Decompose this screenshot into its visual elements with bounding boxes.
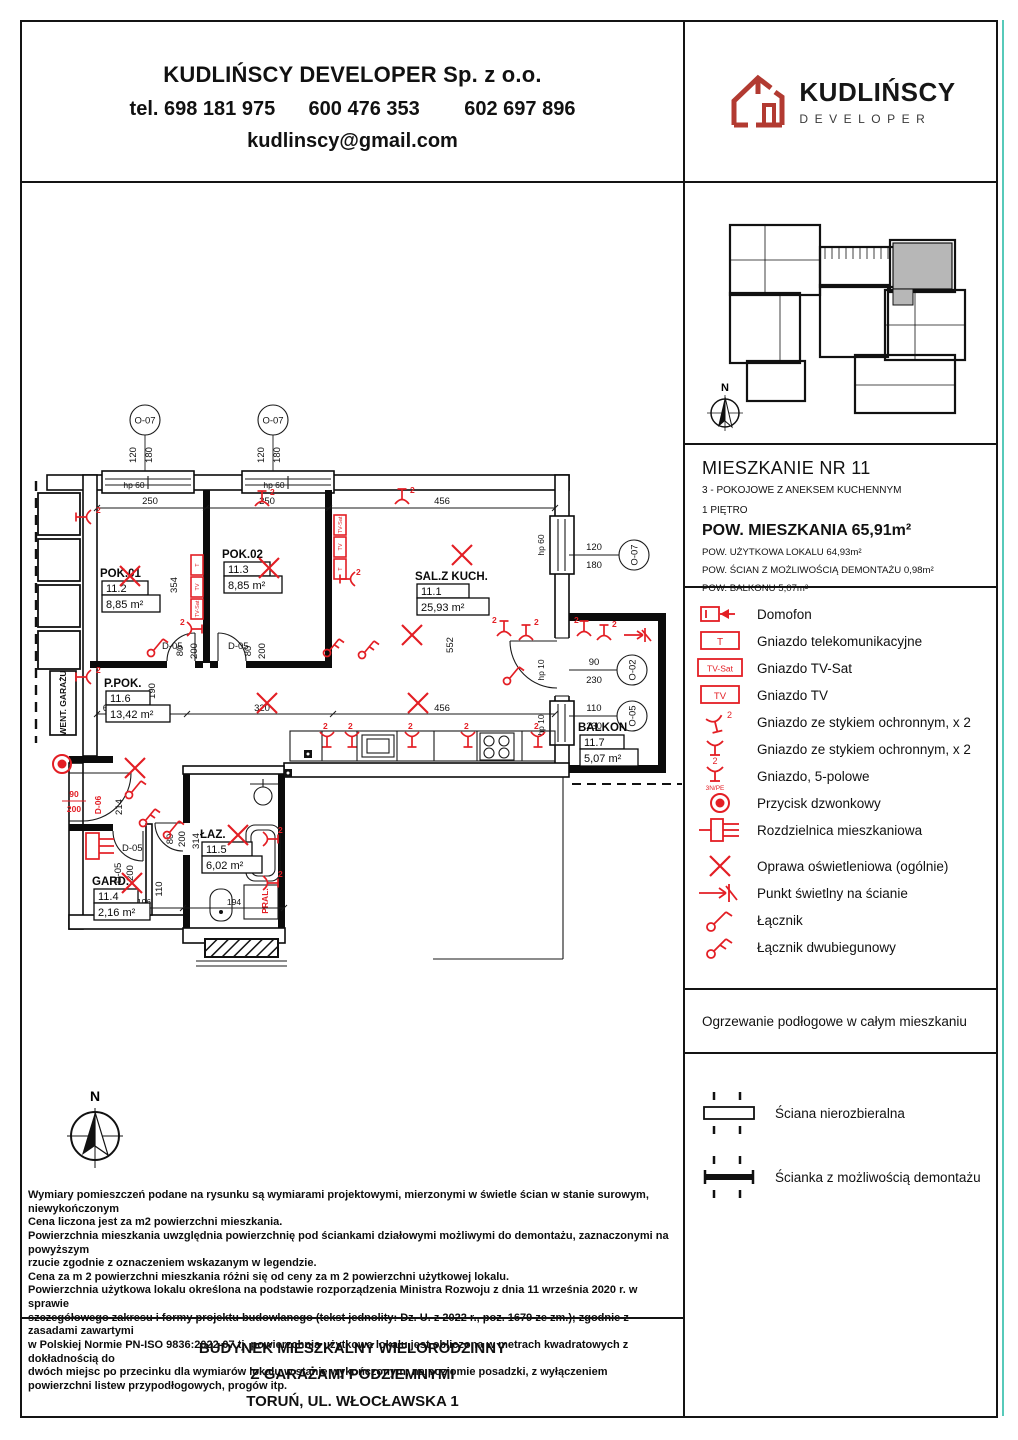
legend-row: Oprawa oświetleniowa (ogólnie)	[685, 853, 996, 879]
window-top-1: hp 60	[102, 471, 194, 493]
svg-text:2: 2	[612, 619, 617, 629]
svg-text:hp 60: hp 60	[536, 534, 546, 556]
svg-text:2: 2	[464, 721, 469, 731]
svg-text:214: 214	[114, 799, 125, 815]
svg-text:354: 354	[169, 577, 180, 593]
tv-sat-socket-icon: TV-Sat	[685, 655, 757, 681]
svg-text:O-07: O-07	[262, 416, 283, 427]
svg-text:TV-Sat: TV-Sat	[707, 664, 734, 674]
apartment-area-walls: POW. ŚCIAN Z MOŻLIWOŚCIĄ DEMONTAŻU 0,98m…	[702, 565, 988, 576]
apartment-subtitle: 3 - POKOJOWE Z ANEKSEM KUCHENNYM	[702, 485, 988, 496]
svg-text:O-07: O-07	[134, 416, 155, 427]
building-overview-plan: N	[685, 185, 996, 441]
legend-row: Przycisk dzwonkowy	[685, 790, 996, 816]
company-phones: tel. 698 181 975 600 476 353 602 697 896	[22, 98, 683, 121]
doorbell-button-icon	[685, 790, 757, 816]
svg-text:250: 250	[142, 496, 158, 507]
svg-text:TV-Sat: TV-Sat	[338, 516, 344, 533]
logo: KUDLIŃSCY DEVELOPER	[685, 22, 996, 183]
room-label-salon: SAL.Z KUCH. 11.1 25,93 m²	[415, 571, 489, 615]
svg-text:WENT. GARAŻU: WENT. GARAŻU	[58, 670, 68, 735]
svg-text:2: 2	[96, 505, 101, 515]
svg-text:6,02 m²: 6,02 m²	[206, 860, 244, 872]
company-email: kudlinscy@gmail.com	[22, 130, 683, 153]
distribution-board	[86, 833, 114, 859]
svg-text:11.7: 11.7	[584, 737, 605, 749]
legend-row: Łącznik	[685, 907, 996, 933]
svg-text:180: 180	[144, 447, 155, 463]
floor-plan-page: KUDLIŃSCY DEVELOPER Sp. z o.o. tel. 698 …	[0, 0, 1018, 1440]
room-label-laz: ŁAZ. 11.5 6,02 m²	[200, 829, 262, 873]
svg-text:TV: TV	[714, 691, 727, 702]
legend-row: 2 Gniazdo ze stykiem ochronnym, x 2	[685, 709, 996, 735]
svg-text:hp 10: hp 10	[536, 659, 546, 681]
apartment-plan-area: hp 60 hp 60 hp 60 hp 10	[22, 183, 683, 1317]
svg-text:11.5: 11.5	[206, 844, 227, 856]
apartment-floor: 1 PIĘTRO	[702, 505, 988, 516]
svg-text:TV: TV	[195, 583, 201, 590]
svg-text:TV-Sat: TV-Sat	[195, 600, 201, 617]
svg-text:POK.02: POK.02	[222, 549, 263, 561]
svg-text:194: 194	[227, 897, 241, 907]
apartment-title: MIESZKANIE NR 11	[702, 458, 988, 479]
garage-vent-shaft: WENT. GARAŻU	[50, 670, 76, 735]
tv-socket-stack-b: TV-Sat TV T	[334, 515, 346, 579]
tv-socket-stack-a: T TV TV-Sat	[191, 555, 203, 619]
light-fixture-icon	[685, 852, 757, 880]
svg-text:2: 2	[574, 615, 579, 625]
svg-text:2: 2	[727, 710, 732, 720]
logo-subtitle: DEVELOPER	[799, 112, 955, 126]
svg-text:8,85 m²: 8,85 m²	[106, 599, 144, 611]
legend-row: Domofon	[685, 601, 996, 627]
svg-text:11.2: 11.2	[106, 583, 127, 595]
svg-text:11.6: 11.6	[110, 693, 131, 705]
company-header: KUDLIŃSCY DEVELOPER Sp. z o.o. tel. 698 …	[22, 22, 683, 183]
svg-text:ŁAZ.: ŁAZ.	[200, 829, 226, 841]
svg-text:80: 80	[175, 646, 186, 657]
logo-name: KUDLIŃSCY	[799, 77, 955, 108]
svg-text:2: 2	[278, 869, 283, 879]
building-overview: N	[685, 185, 996, 445]
building-title-block: BUDYNEK MIESZKALNY WIELORODZINNY Z GARAŻ…	[22, 1317, 683, 1418]
demountable-wall-icon	[685, 1154, 775, 1200]
logo-text: KUDLIŃSCY DEVELOPER	[799, 77, 955, 126]
window-top-2: hp 60	[242, 471, 334, 493]
svg-text:2: 2	[323, 721, 328, 731]
svg-text:2: 2	[410, 485, 415, 495]
room-label-ppok: P.POK. 11.6 13,42 m²	[104, 678, 170, 722]
svg-text:2: 2	[492, 615, 497, 625]
svg-text:230: 230	[586, 675, 602, 686]
svg-text:120: 120	[256, 447, 267, 463]
axis-marker-o07-mid: O-07 120 180	[256, 405, 288, 471]
svg-text:456: 456	[434, 496, 450, 507]
svg-text:11.3: 11.3	[228, 564, 249, 576]
axis-marker-o07-left: O-07 120 180	[128, 405, 160, 471]
company-name: KUDLIŃSCY DEVELOPER Sp. z o.o.	[22, 62, 683, 88]
svg-text:2,16 m²: 2,16 m²	[98, 907, 136, 919]
svg-text:120: 120	[586, 542, 602, 553]
svg-text:D-06: D-06	[93, 796, 103, 815]
legend-row: 2 Gniazdo ze stykiem ochronnym, x 2	[685, 736, 996, 762]
svg-text:11.4: 11.4	[98, 891, 119, 903]
legend-row: T Gniazdo telekomunikacyjne	[685, 628, 996, 654]
svg-text:200: 200	[177, 831, 188, 847]
svg-text:552: 552	[445, 637, 456, 653]
svg-text:456: 456	[434, 703, 450, 714]
room-label-balkon: BALKON 11.7 5,07 m²	[578, 722, 638, 766]
svg-text:8,85 m²: 8,85 m²	[228, 580, 266, 592]
kitchen-stove	[480, 733, 514, 760]
apartment-area-total: POW. MIESZKANIA 65,91m²	[702, 522, 988, 540]
wall-legend-row: Ściana nierozbieralna	[685, 1090, 996, 1136]
svg-text:SAL.Z KUCH.: SAL.Z KUCH.	[415, 571, 488, 583]
distribution-board-icon	[685, 816, 757, 844]
svg-text:2: 2	[278, 825, 283, 835]
svg-text:180: 180	[272, 447, 283, 463]
legend-row: Punkt świetlny na ścianie	[685, 880, 996, 906]
svg-text:T: T	[338, 567, 344, 571]
building-title-line1: BUDYNEK MIESZKALNY WIELORODZINNY	[22, 1336, 683, 1362]
svg-text:N: N	[90, 1088, 100, 1104]
svg-text:TV: TV	[338, 543, 344, 550]
svg-text:PRAL.: PRAL.	[260, 888, 270, 914]
highlighted-unit	[893, 243, 952, 289]
hatched-shaft	[196, 939, 287, 966]
svg-text:90: 90	[589, 657, 600, 668]
domofon-icon	[685, 601, 757, 627]
svg-text:2: 2	[356, 567, 361, 577]
svg-text:P.POK.: P.POK.	[104, 678, 142, 690]
wall-types-legend: Ściana nierozbieralna Ścianka z możliwoś…	[685, 1054, 996, 1418]
svg-text:25,93 m²: 25,93 m²	[421, 602, 465, 614]
switch-icon	[685, 906, 757, 934]
svg-text:T: T	[717, 637, 723, 648]
svg-text:O-02: O-02	[628, 659, 639, 680]
svg-text:200: 200	[67, 804, 81, 814]
apartment-info: MIESZKANIE NR 11 3 - POKOJOWE Z ANEKSEM …	[685, 445, 996, 588]
telecom-socket-icon: T	[685, 628, 757, 654]
legend-row: Łącznik dwubiegunowy	[685, 934, 996, 960]
legend-row: TV Gniazdo TV	[685, 682, 996, 708]
heating-note: Ogrzewanie podłogowe w całym mieszkaniu	[685, 990, 996, 1054]
svg-text:D-05: D-05	[122, 843, 143, 854]
svg-text:2: 2	[408, 721, 413, 731]
tv-socket-icon: TV	[685, 682, 757, 708]
wall-light-icon	[685, 880, 757, 906]
apartment-floor-plan: hp 60 hp 60 hp 60 hp 10	[22, 183, 683, 1193]
symbols-legend: Domofon T Gniazdo telekomunikacyjne TV-S…	[685, 590, 996, 990]
svg-text:2: 2	[534, 721, 539, 731]
svg-text:180: 180	[586, 560, 602, 571]
legend-row: 3N/PE Gniazdo, 5-polowe	[685, 763, 996, 789]
plan-north-compass: N	[67, 1088, 123, 1168]
svg-text:90: 90	[69, 789, 79, 799]
svg-text:2: 2	[96, 665, 101, 675]
svg-text:13,42 m²: 13,42 m²	[110, 709, 154, 721]
svg-text:5,07 m²: 5,07 m²	[584, 753, 622, 765]
svg-text:2: 2	[534, 617, 539, 627]
protected-socket2-icon: 2	[685, 734, 757, 764]
svg-text:110: 110	[586, 703, 601, 714]
svg-text:O-05: O-05	[628, 705, 639, 726]
scan-edge-line	[1002, 20, 1004, 1416]
socket-5pole-icon: 3N/PE	[685, 761, 757, 791]
logo-house-icon	[725, 68, 789, 135]
svg-text:2: 2	[180, 617, 185, 627]
building-title-line2: Z GARAŻAMI PODZIEMNYMI	[22, 1362, 683, 1388]
apartment-area-usable: POW. UŻYTKOWA LOKALU 64,93m²	[702, 547, 988, 558]
switch-two-pole-icon	[685, 933, 757, 961]
svg-text:N: N	[721, 382, 729, 394]
svg-text:120: 120	[128, 447, 139, 463]
svg-text:2: 2	[270, 487, 275, 497]
svg-text:200: 200	[189, 643, 200, 659]
washbasin	[254, 787, 272, 805]
solid-wall-icon	[685, 1090, 775, 1136]
svg-text:110: 110	[154, 881, 165, 896]
overview-north-compass: N	[707, 382, 743, 431]
building-title-line3: TORUŃ, UL. WŁOCŁAWSKA 1	[22, 1389, 683, 1415]
legend-row: TV-Sat Gniazdo TV-Sat	[685, 655, 996, 681]
legend-row: Rozdzielnica mieszkaniowa	[685, 817, 996, 843]
wall-legend-row: Ścianka z możliwością demontażu	[685, 1154, 996, 1200]
axis-marker-o02: 90 230 O-02	[569, 655, 647, 686]
protected-socket-icon: 2	[685, 708, 757, 736]
svg-text:11.1: 11.1	[421, 586, 442, 598]
window-right-hp60: hp 60	[536, 516, 574, 574]
svg-text:200: 200	[257, 643, 268, 659]
svg-text:2: 2	[348, 721, 353, 731]
washing-machine-label: PRAL.	[260, 888, 270, 914]
svg-text:T: T	[195, 563, 201, 567]
svg-text:hp 60: hp 60	[123, 480, 145, 490]
svg-text:80: 80	[243, 646, 254, 657]
svg-text:O-07: O-07	[630, 544, 641, 565]
svg-text:BALKON: BALKON	[578, 722, 627, 734]
axis-marker-o07-right: 120 180 O-07	[569, 540, 649, 571]
